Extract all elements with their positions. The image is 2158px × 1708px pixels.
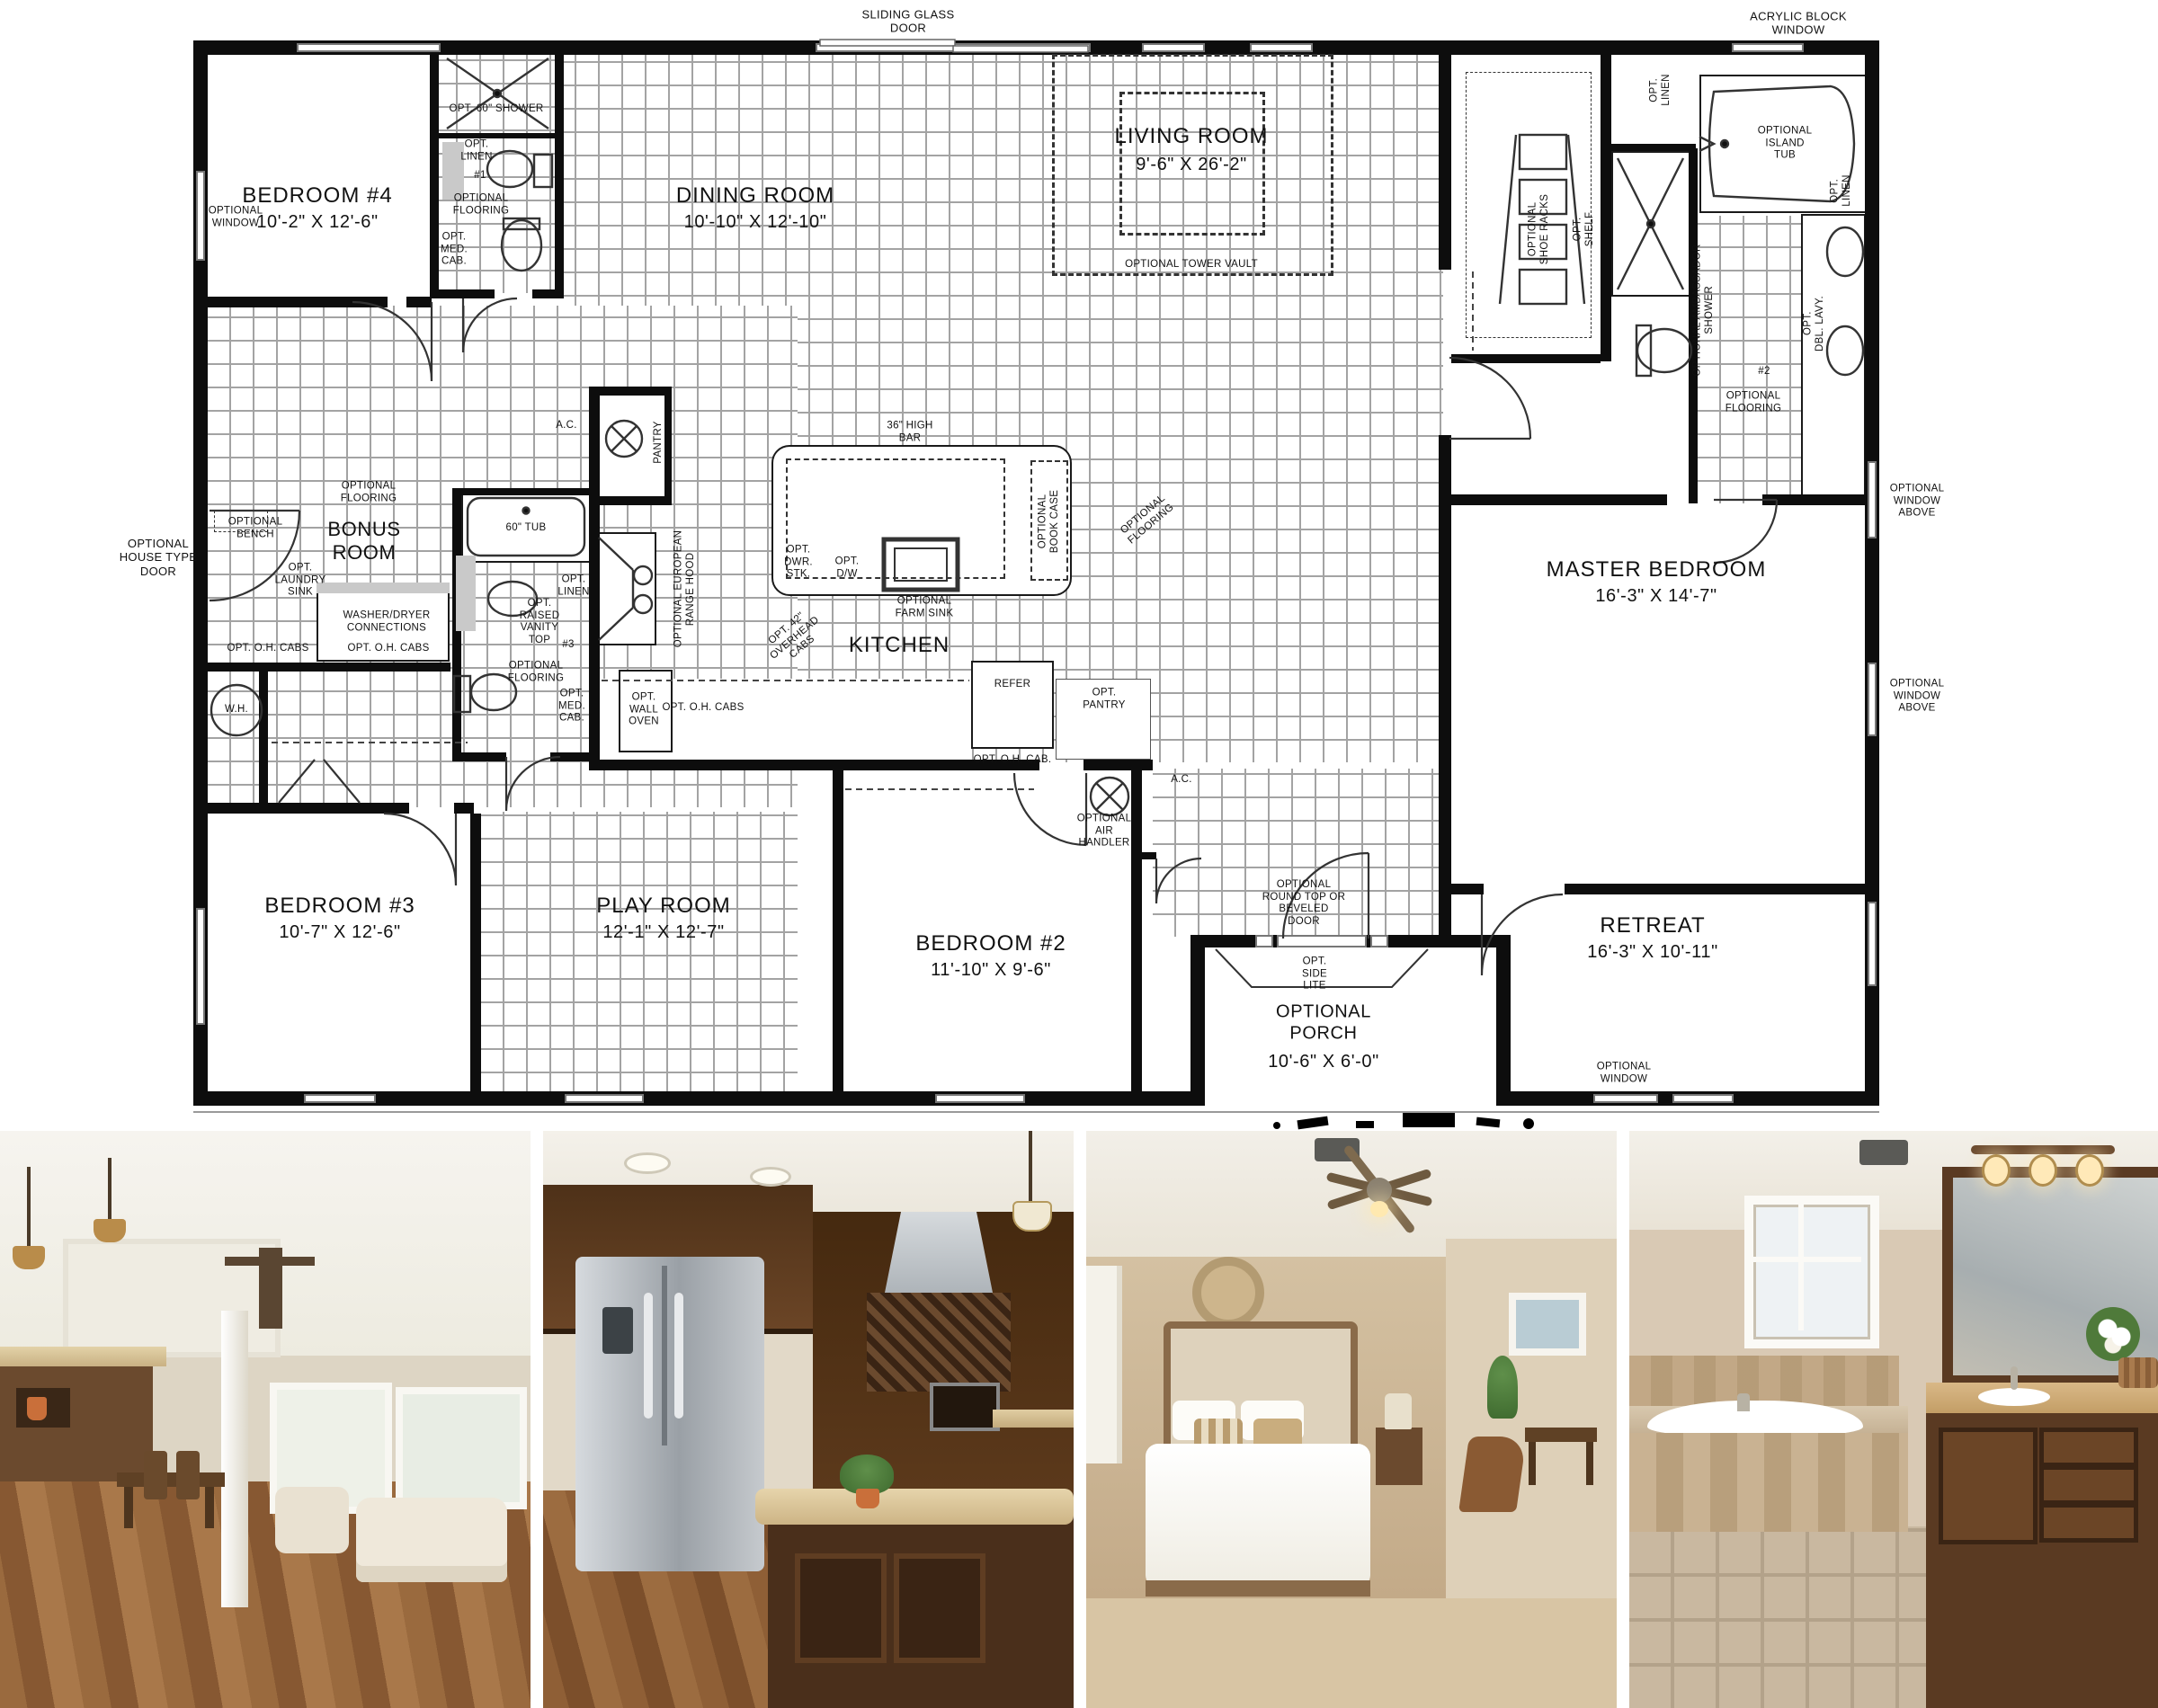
windows [396, 1387, 527, 1509]
label-optional-flooring: OPTIONAL FLOORING [453, 192, 509, 217]
vanity-light [1982, 1154, 2011, 1187]
range-hood [885, 1212, 993, 1293]
sofa [356, 1498, 507, 1582]
console-table [1525, 1428, 1597, 1442]
column [221, 1311, 248, 1607]
label-opt-med-cab: OPT. MED. CAB. [441, 232, 468, 269]
plant-pot [856, 1489, 879, 1508]
cropped-logo-fragment [1273, 1113, 1534, 1129]
fan-motor [1367, 1178, 1392, 1203]
tub-front-tile [1629, 1433, 1908, 1532]
drawer [2039, 1503, 2138, 1543]
label-optional-ambassador-shower: OPTIONAL AMBASSADOR SHOWER [1691, 244, 1716, 376]
floor-plan: BEDROOM #4 10'-2" X 12'-6" DINING ROOM 1… [0, 0, 2158, 1131]
label-acrylic-block-window: ACRYLIC BLOCK WINDOW [1750, 10, 1847, 38]
label-opt-laundry-sink: OPT. LAUNDRY SINK [275, 563, 326, 600]
label-opt-shelf: OPT. SHELF [1572, 212, 1596, 247]
pendant-stem [108, 1158, 111, 1221]
room-dims-porch: 10'-6" X 6'-0" [1268, 1052, 1379, 1073]
room-label-master: MASTER BEDROOM [1547, 557, 1767, 583]
lamp [1385, 1393, 1412, 1429]
room-label-dining: DINING ROOM [676, 183, 834, 209]
vanity-light [2029, 1154, 2057, 1187]
door-arcs [210, 298, 1777, 975]
room-dims-master: 16'-3" X 14'-7" [1595, 586, 1717, 608]
window-mullion [1798, 1196, 1804, 1330]
label-optional-window: OPTIONAL WINDOW [209, 205, 263, 229]
label-opt-med-cab: OPT. MED. CAB. [558, 689, 585, 725]
label-wh: W.H. [225, 704, 248, 716]
room-dims-living: 9'-6" X 26'-2" [1136, 155, 1247, 176]
room-label-bedroom4: BEDROOM #4 [242, 183, 392, 209]
label-opt-raised-vanity-top: OPT. RAISED VANITY TOP [520, 598, 560, 646]
fan-blades [225, 1257, 315, 1266]
dashed-details [216, 216, 1473, 789]
pendant-light [13, 1246, 45, 1269]
microwave [930, 1383, 1000, 1431]
basket [2118, 1357, 2158, 1388]
label-optional-window-above: OPTIONAL WINDOW ABOVE [1890, 484, 1945, 520]
sling-chair [1458, 1437, 1527, 1512]
island-shelf [795, 1553, 887, 1663]
art-frame [1509, 1293, 1586, 1356]
nightstand [1376, 1428, 1422, 1485]
room-label-bedroom3: BEDROOM #3 [264, 894, 415, 919]
dining-chair [144, 1451, 167, 1499]
kitchen-photo[interactable] [543, 1131, 1074, 1708]
label-opt-dbl-lavy: OPT. DBL. LAVY. [1802, 296, 1826, 351]
label-optional-window-above: OPTIONAL WINDOW ABOVE [1890, 679, 1945, 716]
living-dining-room-photo[interactable] [0, 1131, 531, 1708]
label-refer: REFER [994, 679, 1030, 691]
pot-decor [27, 1397, 47, 1420]
fridge-handle [644, 1293, 653, 1419]
table-leg [1586, 1442, 1593, 1485]
label-sliding-glass-door: SLIDING GLASS DOOR [862, 8, 955, 36]
window-mullion [1744, 1257, 1861, 1262]
label-optional-air-handler: OPTIONAL AIR HANDLER [1077, 814, 1132, 850]
table-leg [124, 1487, 133, 1528]
dining-table [117, 1472, 225, 1487]
tub-faucet [1737, 1393, 1750, 1411]
carpet [1086, 1598, 1617, 1708]
ice-dispenser [602, 1307, 633, 1354]
label-optional-farm-sink: OPTIONAL FARM SINK [896, 595, 954, 619]
room-label-play: PLAY ROOM [596, 894, 730, 919]
pendant-light [94, 1219, 126, 1242]
master-bedroom-photo[interactable] [1086, 1131, 1617, 1708]
fridge-seam [662, 1266, 667, 1446]
room-label-bedroom2: BEDROOM #2 [915, 931, 1066, 956]
faucet [2011, 1366, 2018, 1390]
label-ac: A.C. [1171, 774, 1192, 787]
dining-chair [176, 1451, 200, 1499]
label-optional-bench: OPTIONAL BENCH [228, 516, 283, 540]
fan-light [1370, 1201, 1388, 1217]
label-bath3: #3 [562, 639, 574, 652]
stainless-fridge [575, 1257, 764, 1571]
label-ac: A.C. [556, 420, 577, 432]
flowers [2086, 1307, 2140, 1361]
label-optional-shoe-racks: OPTIONAL SHOE RACKS [1527, 194, 1551, 264]
room-dims-bedroom4: 10'-2" X 12'-6" [256, 212, 378, 234]
fridge-handle [674, 1293, 683, 1419]
label-opt-linen: OPT. LINEN [557, 574, 589, 598]
label-pantry: PANTRY [653, 421, 665, 463]
room-label-living: LIVING ROOM [1114, 124, 1268, 149]
light-bar [1971, 1145, 2115, 1154]
window [1744, 1196, 1879, 1348]
pendant-stem [1029, 1131, 1032, 1203]
pendant-stem [27, 1167, 31, 1248]
room-dims-retreat: 16'-3" X 10'-11" [1587, 942, 1718, 964]
label-opt-oh-cabs: OPT. O.H. CABS [347, 643, 429, 655]
room-label-bonus: BONUS ROOM [327, 518, 400, 565]
island-granite [755, 1489, 1074, 1525]
plant [1487, 1356, 1518, 1419]
sink [1978, 1388, 2050, 1406]
label-opt-dw: OPT. D/W [835, 556, 860, 580]
label-opt-oh-cabs: OPT. O.H. CABS [662, 702, 744, 715]
room-label-kitchen: KITCHEN [849, 633, 950, 658]
drawer [2039, 1428, 2138, 1467]
label-optional-flooring: OPTIONAL FLOORING [1726, 390, 1781, 414]
label-bath1: #1 [474, 170, 486, 182]
recessed-light [750, 1167, 791, 1187]
table-leg [1529, 1442, 1536, 1485]
window-left [1086, 1266, 1122, 1463]
label-opt-side-lite: OPT. SIDE LITE [1302, 956, 1327, 993]
table-leg [205, 1487, 214, 1528]
label-optional-flooring: OPTIONAL FLOORING [341, 480, 397, 504]
counter [993, 1410, 1074, 1428]
drawer [2039, 1465, 2138, 1505]
label-opt-linen: OPT. LINEN [1648, 74, 1672, 105]
label-bath2: #2 [1758, 366, 1770, 378]
wall-decor [1192, 1257, 1264, 1329]
armchair [275, 1487, 349, 1553]
room-label-porch: OPTIONAL PORCH [1276, 1001, 1371, 1044]
label-opt-linen: OPT. LINEN [460, 138, 492, 163]
label-opt-pantry: OPT. PANTRY [1083, 687, 1125, 711]
label-optional-island-tub: OPTIONAL ISLAND TUB [1758, 126, 1813, 163]
recessed-light [624, 1152, 671, 1174]
label-opt-oh-cabs: OPT. O.H. CABS [227, 643, 308, 655]
room-dims-bedroom3: 10'-7" X 12'-6" [279, 922, 400, 944]
island-panel [894, 1553, 985, 1663]
label-opt-linen: OPT. LINEN [1829, 174, 1853, 206]
room-dims-play: 12'-1" X 12'-7" [602, 922, 724, 944]
island-granite-top [0, 1347, 166, 1366]
bed-frame [1146, 1580, 1370, 1597]
label-opt-dwr-stk: OPT. DWR. STK. [784, 545, 813, 582]
listing-page: BEDROOM #4 10'-2" X 12'-6" DINING ROOM 1… [0, 0, 2158, 1708]
room-label-retreat: RETREAT [1600, 913, 1705, 939]
mosaic-backsplash [867, 1293, 1011, 1392]
label-opt-wall-oven: OPT. WALL OVEN [629, 692, 659, 729]
label-opt-oh-cab: OPT. O.H. CAB. [974, 754, 1052, 767]
label-optional-round-top-door: OPTIONAL ROUND TOP OR BEVELED DOOR [1262, 879, 1345, 928]
label-optional-book-case: OPTIONAL BOOK CASE [1037, 490, 1061, 553]
vanity-light [2075, 1154, 2104, 1187]
duvet [1146, 1444, 1370, 1588]
label-optional-european-range-hood: OPTIONAL EUROPEAN RANGE HOOD [673, 530, 697, 648]
label-optional-window-bottom: OPTIONAL WINDOW [1597, 1061, 1652, 1085]
room-dims-bedroom2: 11'-10" X 9'-6" [931, 960, 1051, 982]
label-36-high-bar: 36" HIGH BAR [887, 420, 932, 444]
room-dims-dining: 10'-10" X 12'-10" [684, 212, 827, 234]
master-bathroom-photo[interactable] [1629, 1131, 2158, 1708]
label-60-tub: 60" TUB [506, 522, 547, 535]
label-optional-flooring: OPTIONAL FLOORING [508, 660, 564, 684]
label-washer-dryer: WASHER/DRYER CONNECTIONS [343, 609, 431, 634]
cabinet-door [1939, 1428, 2038, 1544]
pendant-light [1012, 1201, 1052, 1232]
label-optional-house-type-door: OPTIONAL HOUSE TYPE DOOR [120, 537, 198, 578]
label-optional-tower-vault: OPTIONAL TOWER VAULT [1125, 259, 1258, 271]
ceiling-vent [1859, 1140, 1908, 1165]
label-opt-60-shower: OPT. 60" SHOWER [449, 103, 543, 116]
